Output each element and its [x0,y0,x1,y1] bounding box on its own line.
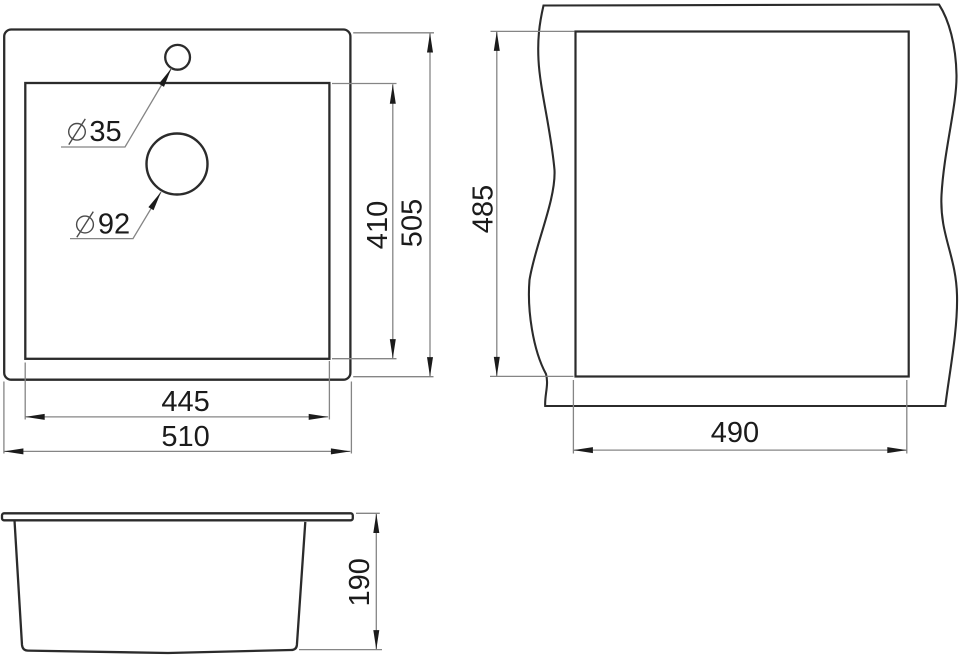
svg-text:410: 410 [362,201,394,249]
svg-text:505: 505 [396,199,428,247]
svg-text:92: 92 [98,209,130,241]
svg-text:510: 510 [161,421,209,453]
svg-text:490: 490 [711,417,759,449]
svg-text:485: 485 [468,185,500,233]
svg-text:445: 445 [161,386,209,418]
svg-text:190: 190 [344,558,376,606]
svg-text:35: 35 [89,116,121,148]
